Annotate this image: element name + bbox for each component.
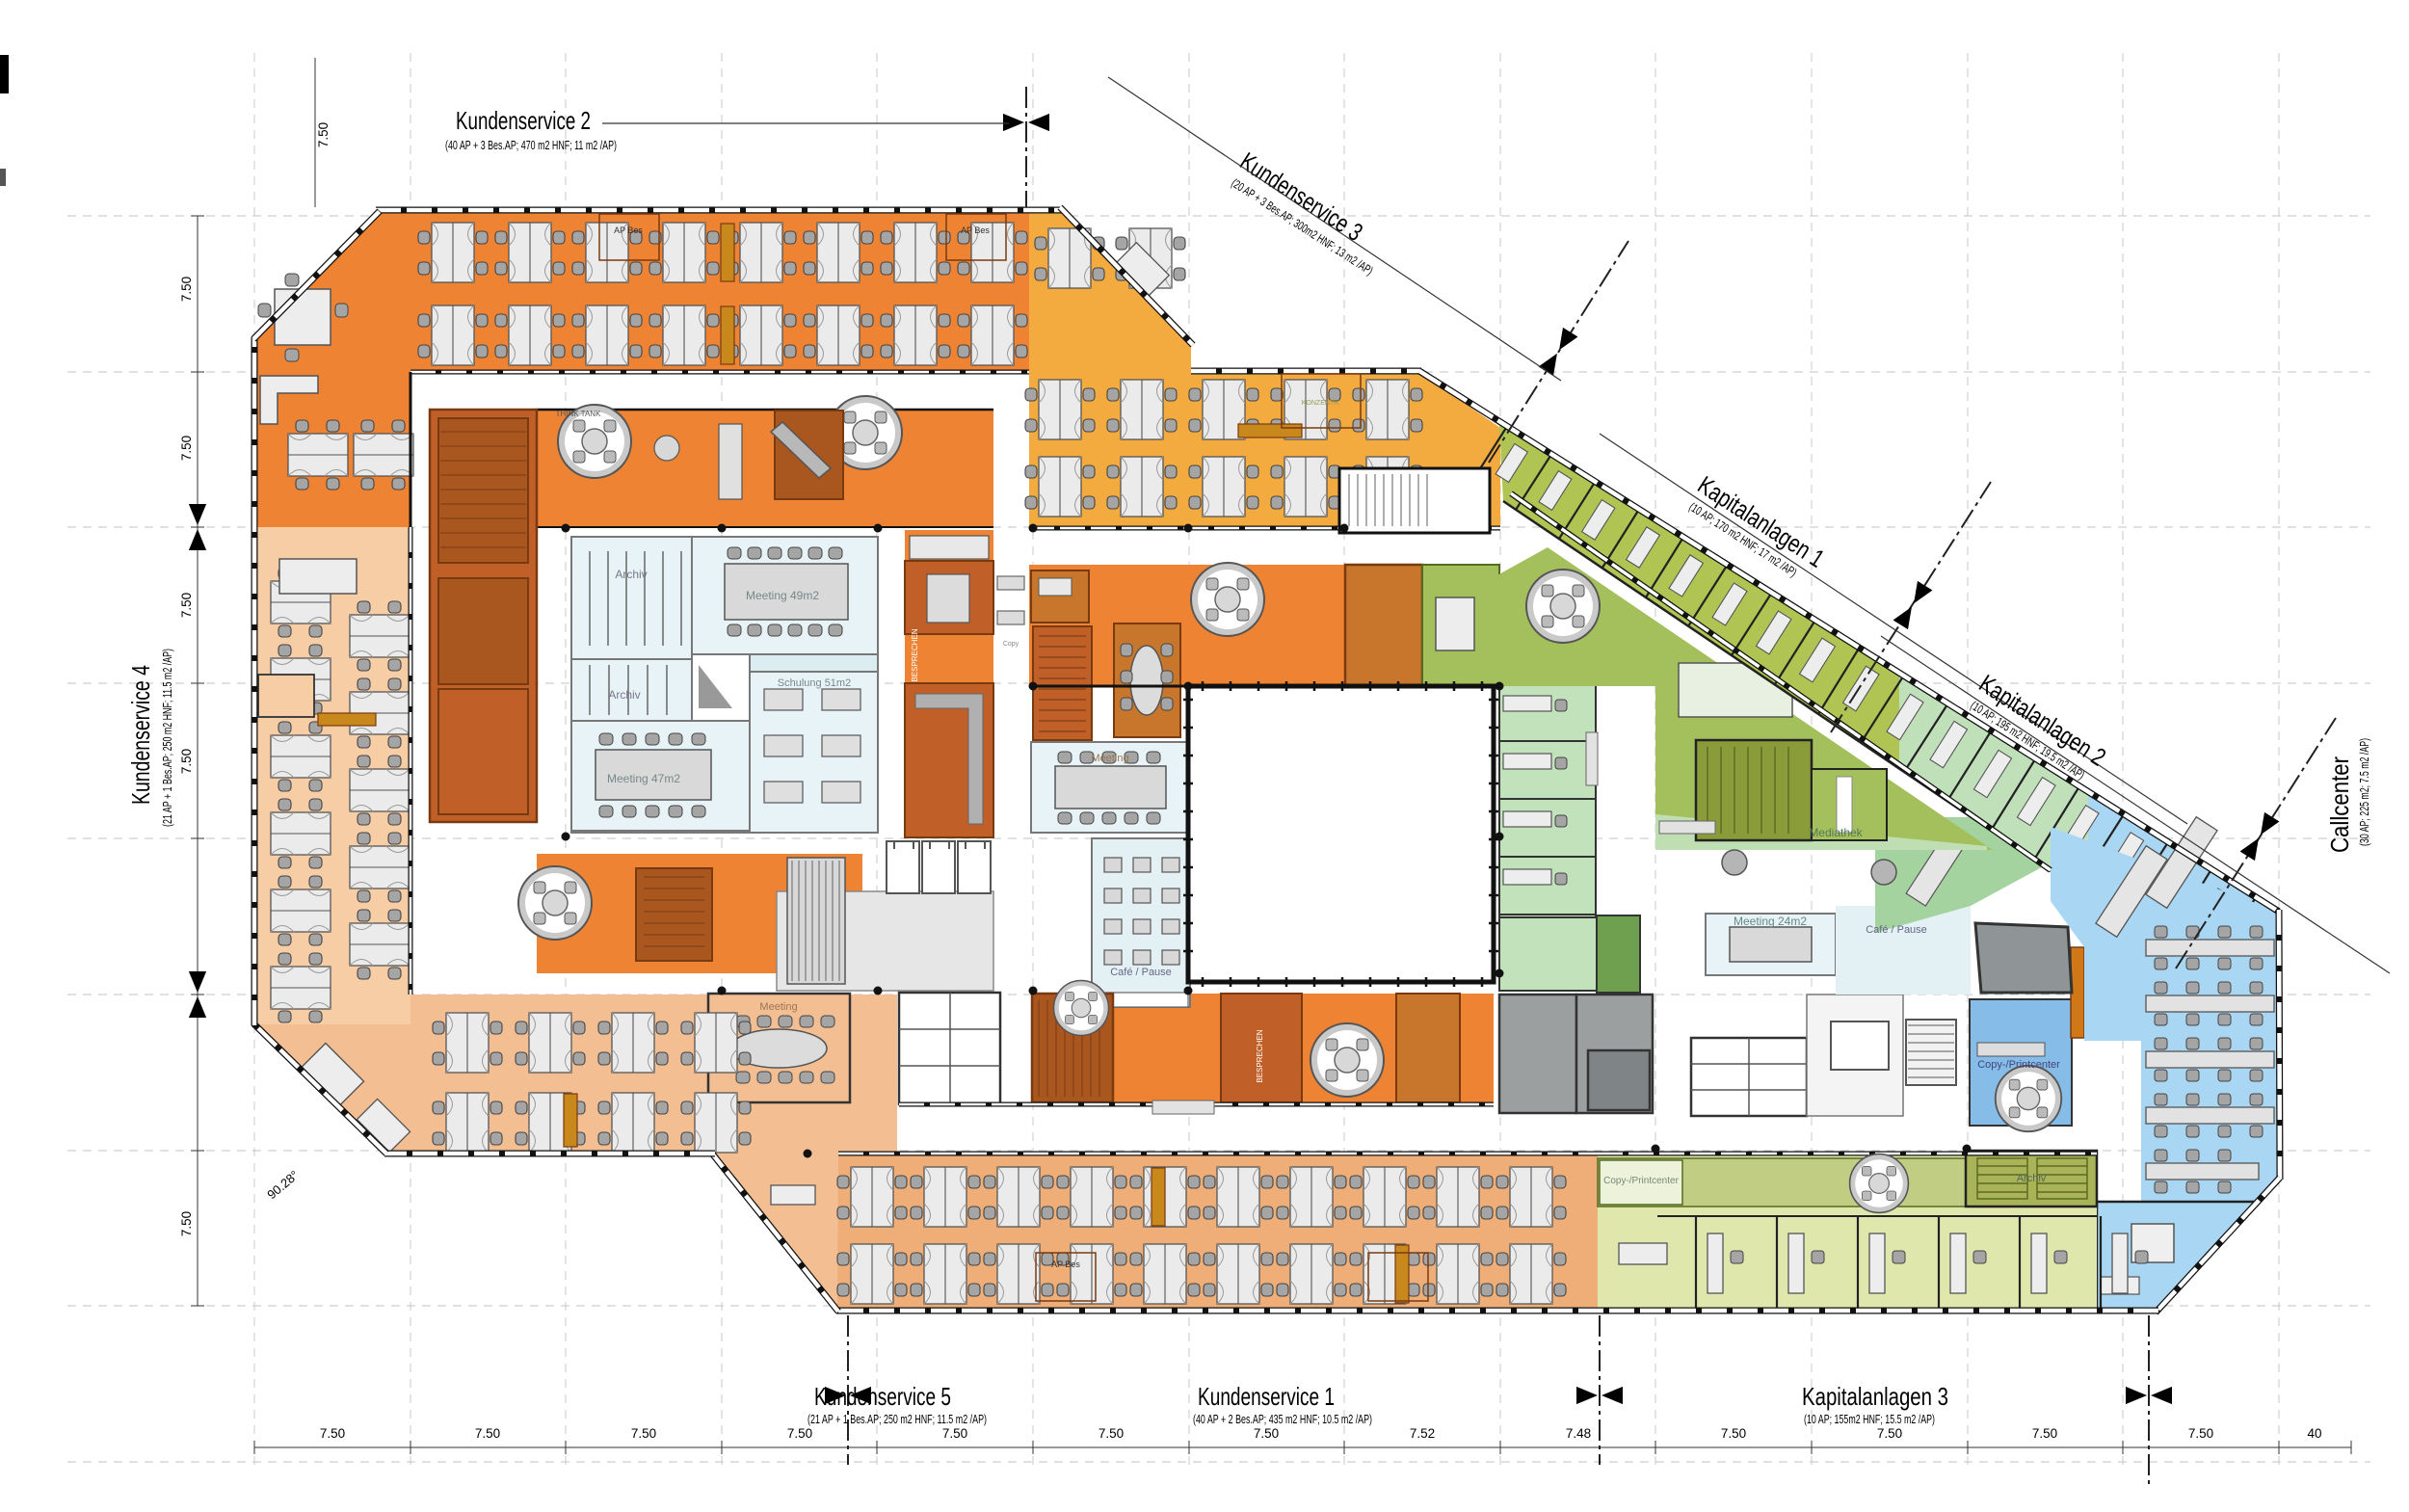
svg-text:7.52: 7.52 [1410, 1426, 1435, 1441]
svg-text:AP Bes: AP Bes [1051, 1260, 1080, 1269]
svg-text:Copy-/Printcenter: Copy-/Printcenter [1977, 1059, 2060, 1071]
svg-text:7.50: 7.50 [179, 436, 194, 461]
svg-text:Schulung 51m2: Schulung 51m2 [778, 677, 851, 689]
svg-text:BESPRECHEN: BESPRECHEN [911, 628, 919, 681]
svg-text:7.50: 7.50 [787, 1426, 812, 1441]
svg-text:7.50: 7.50 [179, 749, 194, 774]
svg-text:AP Bes: AP Bes [961, 225, 990, 235]
svg-text:Meeting: Meeting [1091, 753, 1128, 764]
svg-text:7.50: 7.50 [179, 277, 194, 302]
svg-text:7.50: 7.50 [179, 593, 194, 618]
svg-text:7.50: 7.50 [179, 1211, 194, 1236]
svg-text:BESPRECHEN: BESPRECHEN [1256, 1029, 1264, 1082]
svg-text:(40 AP + 2 Bes.AP; 435 m2 HNF;: (40 AP + 2 Bes.AP; 435 m2 HNF; 10.5 m2 /… [1193, 1412, 1372, 1426]
svg-text:Café / Pause: Café / Pause [1866, 924, 1927, 936]
svg-text:Meeting: Meeting [759, 1001, 797, 1013]
svg-text:7.50: 7.50 [1254, 1426, 1279, 1441]
svg-text:Kundenservice 2: Kundenservice 2 [456, 106, 591, 135]
svg-text:Kapitalanlagen 3: Kapitalanlagen 3 [1802, 1382, 1948, 1411]
svg-text:7.50: 7.50 [475, 1426, 500, 1441]
svg-text:Kundenservice 1: Kundenservice 1 [1198, 1382, 1335, 1411]
svg-text:Copy: Copy [1003, 641, 1019, 648]
svg-text:7.50: 7.50 [1721, 1426, 1746, 1441]
svg-text:(30 AP; 225 m2; 7.5 m2 /AP): (30 AP; 225 m2; 7.5 m2 /AP) [2358, 738, 2371, 846]
svg-text:7.50: 7.50 [942, 1426, 967, 1441]
svg-text:Archiv: Archiv [608, 688, 640, 702]
svg-text:Archiv: Archiv [2017, 1173, 2047, 1184]
svg-text:7.50: 7.50 [1877, 1426, 1902, 1441]
svg-text:THINK TANK: THINK TANK [556, 410, 601, 418]
svg-text:Meeting 49m2: Meeting 49m2 [746, 589, 819, 602]
svg-text:Meeting 47m2: Meeting 47m2 [607, 772, 680, 785]
svg-text:(21 AP + 1 Bes.AP; 250 m2 HNF;: (21 AP + 1 Bes.AP; 250 m2 HNF; 11.5 m2 /… [161, 649, 174, 827]
svg-text:Callcenter: Callcenter [2325, 756, 2354, 853]
svg-text:AP Bes: AP Bes [614, 225, 643, 235]
svg-text:Copy-/Printcenter: Copy-/Printcenter [1603, 1176, 1679, 1186]
svg-text:(40 AP + 3 Bes.AP; 470 m2 HNF;: (40 AP + 3 Bes.AP; 470 m2 HNF; 11 m2 /AP… [445, 138, 617, 152]
svg-text:7.50: 7.50 [2032, 1426, 2057, 1441]
svg-text:40: 40 [2307, 1426, 2321, 1441]
svg-text:7.50: 7.50 [316, 122, 331, 147]
svg-text:7.50: 7.50 [2188, 1426, 2213, 1441]
svg-text:7.48: 7.48 [1566, 1426, 1591, 1441]
svg-text:(21 AP + 1 Bes.AP; 250 m2 HNF;: (21 AP + 1 Bes.AP; 250 m2 HNF; 11.5 m2 /… [807, 1412, 987, 1426]
svg-text:Archiv: Archiv [615, 568, 647, 581]
svg-text:Kundenservice 4: Kundenservice 4 [126, 665, 155, 805]
svg-text:Mediathek: Mediathek [1809, 826, 1863, 839]
svg-text:KONZENTR.: KONZENTR. [1302, 400, 1341, 407]
svg-text:Kundenservice 5: Kundenservice 5 [814, 1382, 951, 1411]
svg-text:Meeting 24m2: Meeting 24m2 [1734, 915, 1807, 928]
svg-text:(10 AP; 155m2 HNF; 15.5 m2 /AP: (10 AP; 155m2 HNF; 15.5 m2 /AP) [1804, 1412, 1935, 1426]
svg-text:7.50: 7.50 [320, 1426, 345, 1441]
svg-text:7.50: 7.50 [1099, 1426, 1124, 1441]
svg-text:Café / Pause: Café / Pause [1110, 967, 1172, 978]
svg-text:7.50: 7.50 [631, 1426, 656, 1441]
